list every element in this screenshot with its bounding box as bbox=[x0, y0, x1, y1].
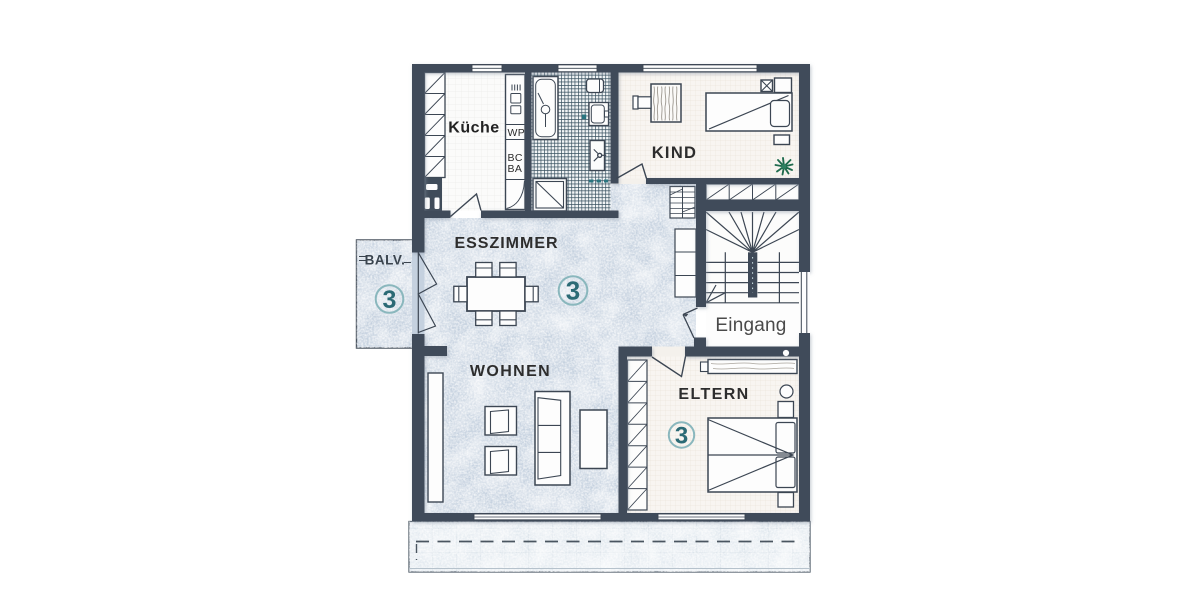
svg-text:WOHNEN: WOHNEN bbox=[470, 363, 551, 380]
svg-text:KIND: KIND bbox=[652, 144, 698, 162]
svg-text:3: 3 bbox=[566, 276, 580, 306]
svg-text:3: 3 bbox=[383, 286, 397, 314]
svg-text:ELTERN: ELTERN bbox=[678, 386, 749, 403]
svg-text:Eingang: Eingang bbox=[715, 315, 786, 336]
svg-text:3: 3 bbox=[675, 423, 688, 450]
svg-text:BA: BA bbox=[508, 163, 523, 175]
svg-text:Küche: Küche bbox=[448, 120, 499, 137]
svg-text:BALV.: BALV. bbox=[365, 253, 406, 268]
svg-text:WP: WP bbox=[508, 127, 526, 139]
svg-text:ESSZIMMER: ESSZIMMER bbox=[454, 235, 558, 252]
